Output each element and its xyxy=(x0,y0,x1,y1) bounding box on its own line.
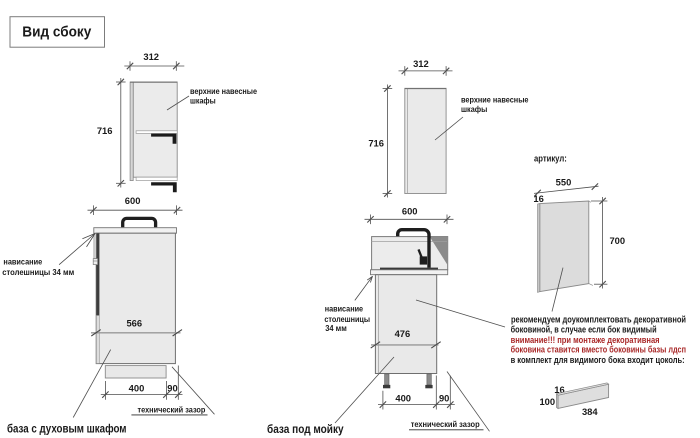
svg-text:312: 312 xyxy=(413,58,429,69)
svg-text:400: 400 xyxy=(395,392,411,403)
svg-text:шкафы: шкафы xyxy=(461,105,487,114)
svg-text:476: 476 xyxy=(395,328,411,339)
svg-text:нависание: нависание xyxy=(3,258,42,267)
svg-text:база с духовым шкафом: база с духовым шкафом xyxy=(7,422,127,436)
svg-text:600: 600 xyxy=(402,205,418,216)
svg-text:верхние навесные: верхние навесные xyxy=(190,87,257,96)
svg-text:34 мм: 34 мм xyxy=(325,324,347,333)
svg-text:шкафы: шкафы xyxy=(190,97,216,106)
svg-text:артикул:: артикул: xyxy=(534,153,567,164)
svg-text:90: 90 xyxy=(439,392,449,403)
svg-text:технический зазор: технический зазор xyxy=(138,406,206,415)
svg-text:боковиной, в случае если бок в: боковиной, в случае если бок видимый xyxy=(511,324,657,334)
svg-text:400: 400 xyxy=(129,383,145,394)
svg-text:600: 600 xyxy=(125,195,141,206)
svg-text:700: 700 xyxy=(609,235,625,246)
svg-text:716: 716 xyxy=(97,125,113,136)
svg-text:столешницы 34 мм: столешницы 34 мм xyxy=(2,268,74,277)
svg-text:база под мойку: база под мойку xyxy=(267,422,344,436)
svg-text:384: 384 xyxy=(582,406,598,417)
svg-text:внимание!!! при монтаже декора: внимание!!! при монтаже декоративная xyxy=(511,335,660,345)
svg-text:боковина ставится вместо боков: боковина ставится вместо боковины базы л… xyxy=(511,345,686,355)
svg-text:Вид сбоку: Вид сбоку xyxy=(22,24,92,41)
svg-text:в комплект для видимого бока в: в комплект для видимого бока входит цоко… xyxy=(511,355,685,365)
svg-text:столешницы: столешницы xyxy=(324,315,370,324)
svg-text:716: 716 xyxy=(368,137,384,148)
svg-text:312: 312 xyxy=(143,51,159,62)
svg-text:рекомендуем доукомплектовать д: рекомендуем доукомплектовать декоративно… xyxy=(511,314,686,324)
svg-text:технический зазор: технический зазор xyxy=(411,420,480,429)
svg-text:16: 16 xyxy=(533,193,543,204)
svg-text:90: 90 xyxy=(167,383,177,394)
svg-text:550: 550 xyxy=(556,176,572,187)
svg-text:100: 100 xyxy=(539,396,555,407)
svg-text:566: 566 xyxy=(126,318,142,329)
svg-text:нависание: нависание xyxy=(325,305,364,314)
svg-text:верхние навесные: верхние навесные xyxy=(461,96,529,105)
